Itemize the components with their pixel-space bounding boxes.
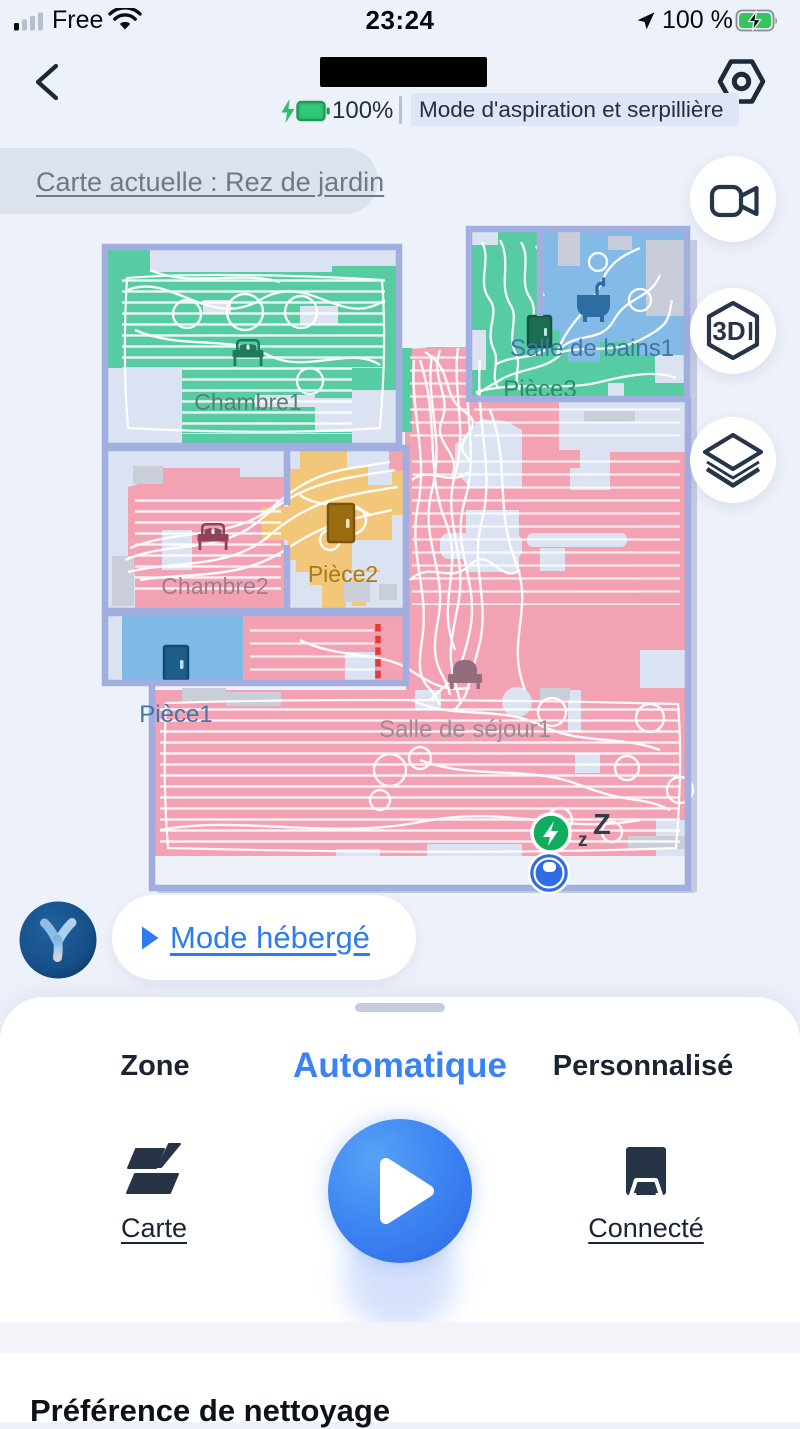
svg-text:z: z	[578, 830, 588, 851]
svg-text:Z: Z	[593, 809, 611, 841]
svg-text:Pièce1: Pièce1	[139, 701, 212, 728]
svg-text:Salle de bains1: Salle de bains1	[510, 335, 674, 362]
svg-text:Pièce2: Pièce2	[308, 561, 378, 587]
svg-text:Chambre1: Chambre1	[194, 389, 301, 415]
svg-text:Chambre2: Chambre2	[161, 573, 268, 599]
svg-text:3D: 3D	[712, 316, 745, 346]
svg-text:Salle de séjour1: Salle de séjour1	[379, 716, 551, 743]
